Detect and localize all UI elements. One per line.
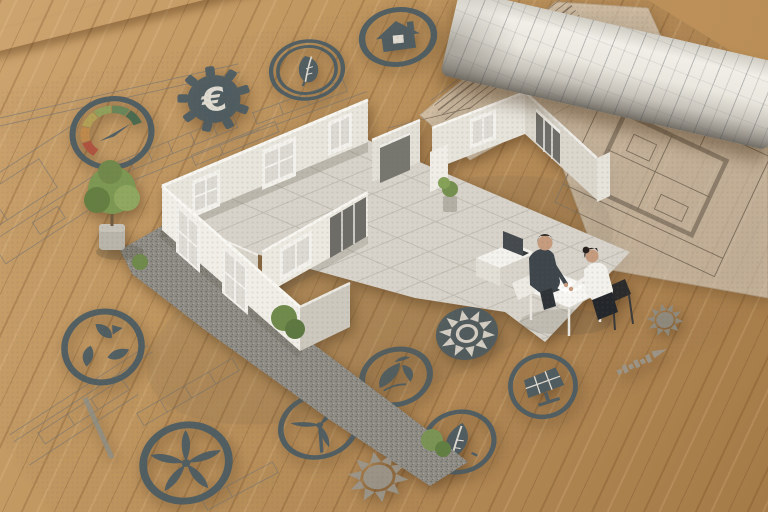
scene: € bbox=[0, 0, 768, 512]
corner-pillar bbox=[597, 152, 610, 202]
